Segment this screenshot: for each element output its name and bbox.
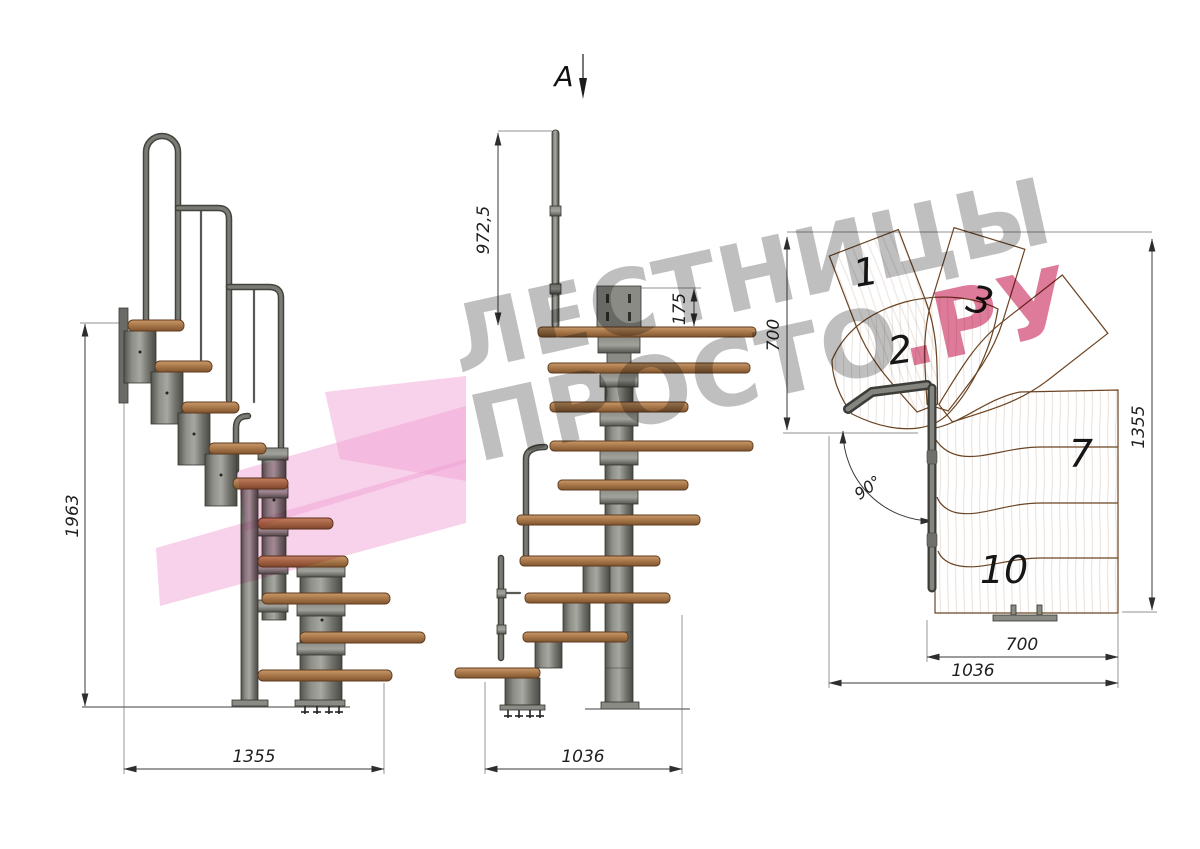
dim-rail-height: 972,5 [474, 206, 494, 255]
step-number-10: 10 [980, 548, 1028, 592]
dim-front-depth: 1036 [561, 747, 604, 767]
front-handrail [497, 447, 545, 658]
dim-side-depth: 1355 [232, 747, 275, 767]
section-marker: A [552, 54, 587, 99]
dim-turn-angle: 90° [851, 472, 885, 504]
dim-plate-offset: 175 [670, 293, 690, 325]
staircase-technical-drawing: 1963 [0, 0, 1200, 849]
step-number-7: 7 [1069, 432, 1093, 476]
dim-plan-overall-depth: 1355 [1129, 405, 1149, 448]
dim-plan-overall-width: 1036 [951, 661, 994, 681]
view-side-elevation: 1963 [63, 136, 425, 774]
turn-angle-arc [843, 431, 933, 521]
dim-side-height: 1963 [63, 494, 83, 537]
section-label: A [552, 60, 573, 93]
dim-plan-upper-run: 700 [764, 319, 784, 351]
support-column-1 [241, 485, 258, 702]
handrail-post [552, 130, 559, 328]
view-plan: 700 1355 90° [764, 228, 1157, 688]
drawing-canvas: 1963 [0, 0, 1200, 849]
tread [128, 320, 184, 331]
dim-plan-lower-run: 700 [1006, 635, 1038, 655]
view-front-elevation: A 972,5 175 [455, 54, 756, 774]
section-arrow-icon [579, 78, 587, 99]
